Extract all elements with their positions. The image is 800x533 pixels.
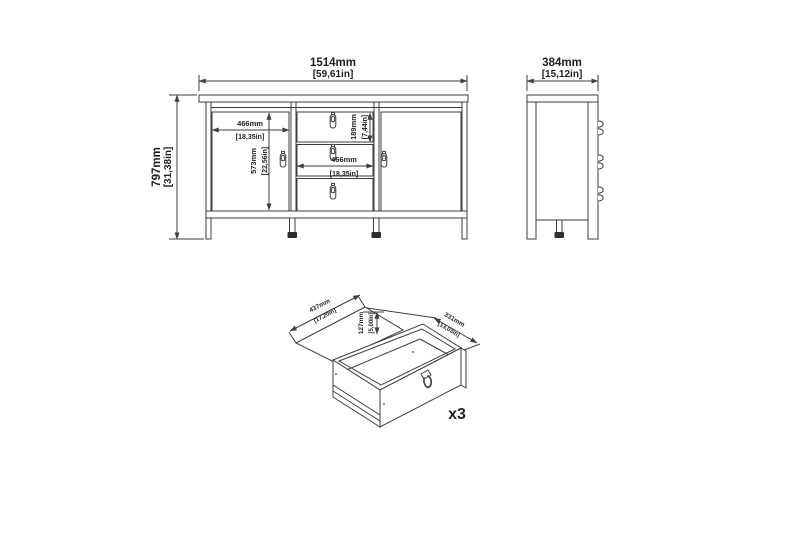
front-height-inch-label: [31,38in] bbox=[163, 147, 174, 188]
side-handle-3 bbox=[598, 187, 603, 201]
side-top-board bbox=[527, 95, 598, 102]
center-foot-cap-right bbox=[372, 232, 382, 238]
front-cabinet-body bbox=[199, 95, 468, 239]
side-view: 384mm [15,12in] bbox=[527, 57, 603, 239]
side-handle-1 bbox=[598, 121, 603, 135]
side-back-leg bbox=[527, 102, 536, 239]
screw-dot-front bbox=[383, 403, 385, 405]
left-divider bbox=[291, 102, 296, 211]
side-foot-stem bbox=[557, 220, 563, 233]
drawer-width-inch-label: [18,35in] bbox=[330, 171, 358, 178]
drawer-3-handle bbox=[330, 183, 336, 199]
front-right-leg bbox=[462, 218, 467, 239]
drawer-height-inch-label: [7,44in] bbox=[362, 115, 369, 140]
front-height-mm-label: 797mm bbox=[151, 147, 163, 187]
detail-height-mm-label: 127mm bbox=[358, 312, 365, 335]
front-view: 1514mm [59,61in] 797mm [31,38in] bbox=[151, 57, 468, 239]
right-stile bbox=[462, 102, 467, 211]
center-foot-cap-left bbox=[288, 232, 298, 238]
drawer-detail-view: 437mm [17,20in] 127mm [5,00in] 331mm [13… bbox=[289, 295, 480, 427]
right-divider bbox=[374, 102, 379, 211]
center-foot-stem-right bbox=[374, 218, 380, 233]
right-door-handle bbox=[381, 151, 387, 167]
side-handle-2 bbox=[598, 155, 603, 169]
technical-drawing-canvas: 1514mm [59,61in] 797mm [31,38in] bbox=[0, 0, 800, 533]
front-width-mm-label: 1514mm bbox=[310, 57, 356, 69]
drawer-height-mm-label: 189mm bbox=[349, 114, 358, 140]
side-foot-cap bbox=[555, 232, 565, 238]
side-depth-inch-label: [15,12in] bbox=[542, 69, 583, 80]
drawer-width-mm-label: 466mm bbox=[331, 155, 357, 164]
drawer-1-handle bbox=[330, 112, 336, 128]
side-depth-dimension: 384mm [15,12in] bbox=[527, 57, 598, 91]
front-left-leg bbox=[206, 218, 211, 239]
left-stile bbox=[206, 102, 211, 211]
side-panel bbox=[536, 102, 588, 220]
door-width-mm-label: 466mm bbox=[237, 119, 263, 128]
door-width-inch-label: [18,35in] bbox=[236, 134, 264, 141]
sideboard-dimension-drawing: 1514mm [59,61in] 797mm [31,38in] bbox=[0, 0, 800, 533]
left-door-handle bbox=[280, 151, 286, 167]
side-depth-mm-label: 384mm bbox=[542, 57, 582, 69]
screw-dot-floor bbox=[412, 351, 414, 353]
door-height-inch-label: [22,56in] bbox=[262, 147, 269, 175]
side-cabinet-body bbox=[527, 95, 603, 239]
front-overall-height-dimension: 797mm [31,38in] bbox=[151, 95, 204, 239]
drawer-front-edge bbox=[461, 348, 466, 388]
front-width-inch-label: [59,61in] bbox=[313, 69, 354, 80]
front-overall-width-dimension: 1514mm [59,61in] bbox=[199, 57, 467, 91]
side-front-leg bbox=[588, 102, 598, 239]
center-foot-stem-left bbox=[290, 218, 296, 233]
top-board bbox=[199, 95, 468, 102]
bottom-rail bbox=[206, 211, 467, 218]
detail-height-inch-label: [5,00in] bbox=[369, 312, 375, 333]
screw-dot-side bbox=[335, 373, 337, 375]
right-door bbox=[381, 112, 461, 211]
door-height-mm-label: 573mm bbox=[249, 148, 258, 174]
drawer-quantity-label: x3 bbox=[448, 406, 466, 423]
